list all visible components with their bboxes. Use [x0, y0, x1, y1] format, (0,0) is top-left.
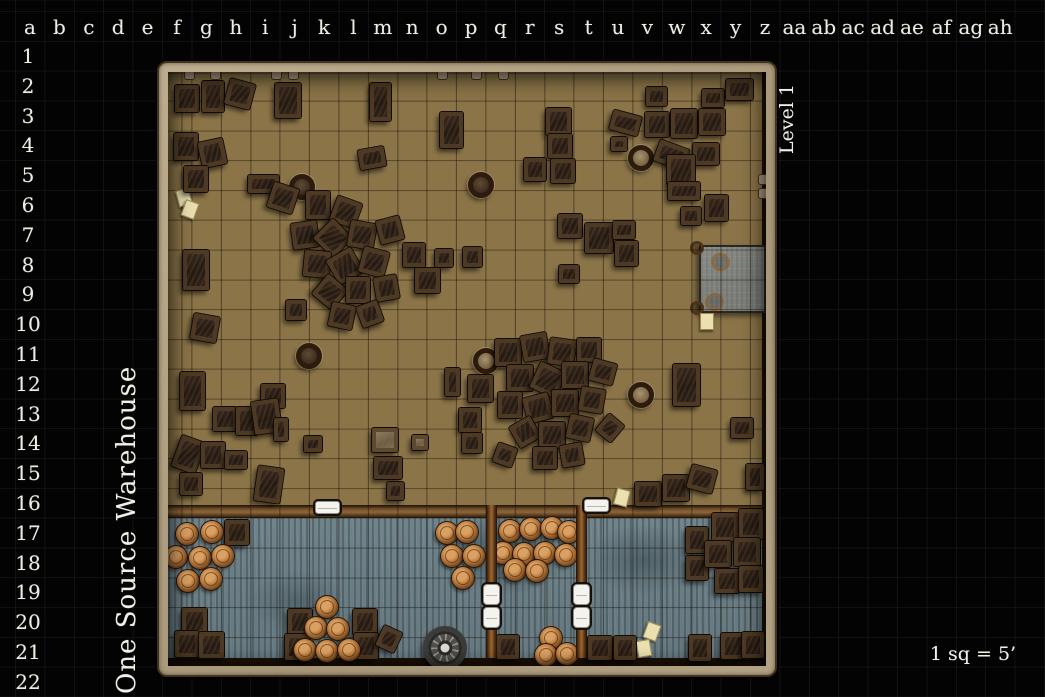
- column-label-n: n: [406, 17, 419, 37]
- crate: [507, 365, 533, 391]
- crate: [673, 364, 700, 406]
- crate: [357, 146, 386, 170]
- crate: [578, 386, 606, 414]
- row-label-8: 8: [22, 255, 35, 275]
- barrel: [520, 518, 542, 540]
- crate: [595, 413, 624, 443]
- column-label-l: l: [350, 17, 356, 37]
- crate: [533, 447, 557, 469]
- crate: [199, 632, 224, 658]
- round-vat: [628, 145, 654, 171]
- barrel: [499, 520, 521, 542]
- map-screen: One Source Warehouse Level 1 1 sq = 5’ a…: [0, 0, 1045, 697]
- crate: [374, 457, 402, 479]
- row-label-16: 16: [15, 493, 40, 513]
- crate: [645, 112, 669, 137]
- crate: [375, 625, 402, 653]
- wall-notch: [758, 174, 766, 185]
- crate: [726, 79, 753, 100]
- column-label-aa: aa: [782, 17, 806, 37]
- crate: [174, 133, 198, 160]
- crate: [613, 221, 635, 239]
- crate: [201, 442, 225, 468]
- crate: [197, 138, 227, 169]
- crate: [224, 78, 256, 110]
- barrel: [168, 546, 187, 568]
- paper-note: [636, 638, 653, 657]
- column-label-i: i: [262, 17, 268, 37]
- crate: [562, 362, 588, 388]
- row-label-15: 15: [15, 463, 40, 483]
- crate: [705, 541, 731, 567]
- barrel: [316, 596, 338, 618]
- column-label-o: o: [436, 17, 448, 37]
- barrel: [456, 521, 478, 543]
- wall-notch: [437, 72, 448, 80]
- crate: [705, 195, 728, 221]
- wall-notch: [758, 188, 766, 199]
- barrel: [305, 617, 327, 639]
- wall-notch: [184, 72, 195, 80]
- row-label-18: 18: [15, 553, 40, 573]
- crate: [702, 89, 724, 107]
- crate: [497, 635, 519, 659]
- column-label-ah: ah: [988, 17, 1013, 37]
- row-label-11: 11: [15, 344, 40, 364]
- column-label-h: h: [229, 17, 242, 37]
- crate: [611, 137, 627, 151]
- wall-notch: [210, 72, 221, 80]
- crate: [353, 609, 377, 635]
- column-label-z: z: [760, 17, 771, 37]
- crate: [468, 375, 493, 402]
- map-object-layer: [168, 72, 766, 666]
- column-label-ag: ag: [958, 17, 983, 37]
- crate: [387, 482, 404, 500]
- crate: [739, 566, 763, 592]
- barrel: [177, 570, 199, 592]
- crate: [746, 464, 764, 490]
- row-label-13: 13: [15, 404, 40, 424]
- map-interior: [168, 72, 766, 666]
- crate: [739, 509, 763, 539]
- barrel: [555, 544, 577, 566]
- barrel: [504, 559, 526, 581]
- crate: [635, 482, 661, 506]
- crate: [686, 464, 717, 494]
- crate: [731, 418, 753, 438]
- barrel: [316, 640, 338, 662]
- wall-notch: [271, 72, 282, 80]
- crate: [615, 241, 638, 266]
- crate: [715, 569, 739, 593]
- barrel: [327, 618, 349, 640]
- dock-divider-wall-left: [486, 505, 497, 658]
- crate: [190, 313, 220, 343]
- row-label-14: 14: [15, 433, 40, 453]
- crate: [412, 435, 428, 450]
- crate: [589, 358, 618, 385]
- crate: [671, 109, 697, 138]
- crate: [459, 408, 481, 432]
- barrel: [535, 644, 557, 666]
- crate: [614, 636, 636, 660]
- barrel: [338, 639, 360, 661]
- row-label-1: 1: [22, 46, 35, 66]
- row-label-20: 20: [15, 612, 40, 632]
- barrel: [441, 545, 463, 567]
- column-label-f: f: [173, 17, 180, 37]
- crate: [663, 475, 689, 501]
- barrel: [526, 560, 548, 582]
- row-label-6: 6: [22, 195, 35, 215]
- barrel: [436, 522, 458, 544]
- column-label-g: g: [200, 17, 213, 37]
- crate: [347, 220, 377, 250]
- barrel: [189, 547, 211, 569]
- crate: [551, 159, 575, 183]
- row-label-5: 5: [22, 165, 35, 185]
- crate: [559, 265, 579, 283]
- crate: [585, 223, 613, 253]
- crate: [520, 332, 550, 362]
- barrel: [201, 521, 223, 543]
- column-label-x: x: [701, 17, 712, 37]
- barrel: [212, 545, 234, 567]
- column-label-y: y: [730, 17, 741, 37]
- paper-note: [700, 313, 714, 330]
- crate: [175, 631, 199, 657]
- map-title: One Source Warehouse: [112, 332, 152, 694]
- crate: [304, 436, 322, 452]
- crate: [539, 422, 565, 448]
- crate: [435, 249, 453, 267]
- round-vat: [296, 343, 322, 369]
- column-label-q: q: [494, 17, 507, 37]
- row-label-4: 4: [22, 135, 35, 155]
- crate: [213, 407, 237, 431]
- column-label-ac: ac: [842, 17, 865, 37]
- column-label-a: a: [24, 17, 36, 37]
- column-label-d: d: [112, 17, 125, 37]
- column-label-t: t: [585, 17, 593, 37]
- column-label-w: w: [668, 17, 685, 37]
- column-label-b: b: [53, 17, 66, 37]
- crate: [445, 368, 460, 396]
- crate: [415, 268, 440, 293]
- paper-note: [643, 621, 662, 642]
- crate: [742, 632, 764, 658]
- door-divider-right-upper: [573, 584, 590, 605]
- level-label: Level 1: [776, 62, 806, 154]
- crate: [225, 451, 247, 469]
- crate: [667, 155, 695, 185]
- row-label-2: 2: [22, 76, 35, 96]
- battle-map-canvas[interactable]: [157, 61, 777, 677]
- crate: [180, 473, 202, 495]
- crate: [306, 191, 330, 219]
- crate: [175, 85, 199, 112]
- door-warehouse-dock-right: [584, 499, 609, 512]
- crate: [734, 538, 760, 566]
- crate: [403, 243, 425, 267]
- crate: [183, 250, 209, 290]
- door-divider-left-upper: [483, 584, 500, 605]
- crate: [495, 339, 521, 366]
- crate: [180, 372, 205, 410]
- row-label-3: 3: [22, 106, 35, 126]
- wall-notch: [288, 72, 299, 80]
- round-vat: [628, 382, 654, 408]
- crate: [693, 143, 719, 165]
- column-label-m: m: [373, 17, 392, 37]
- crate: [546, 108, 571, 135]
- door-warehouse-dock-left: [315, 501, 340, 514]
- crate: [681, 207, 701, 225]
- barrel: [452, 567, 474, 589]
- row-label-9: 9: [22, 284, 35, 304]
- wall-notch: [471, 72, 482, 80]
- crate: [566, 414, 594, 442]
- column-label-r: r: [525, 17, 535, 37]
- row-label-19: 19: [15, 582, 40, 602]
- barrel: [176, 523, 198, 545]
- crate: [492, 442, 518, 468]
- round-vat: [468, 172, 494, 198]
- row-label-22: 22: [15, 672, 40, 692]
- dock-divider-wall-right: [576, 505, 587, 658]
- crate: [375, 215, 404, 244]
- column-label-k: k: [318, 17, 330, 37]
- crate: [608, 110, 641, 137]
- column-label-af: af: [932, 17, 951, 37]
- barrel: [294, 639, 316, 661]
- crate: [462, 433, 482, 453]
- row-label-21: 21: [15, 642, 40, 662]
- crate: [440, 112, 463, 148]
- scale-label: 1 sq = 5’: [928, 643, 1018, 665]
- crate: [346, 277, 370, 303]
- crate: [559, 442, 584, 467]
- row-label-7: 7: [22, 225, 35, 245]
- crate: [524, 158, 546, 181]
- crate: [552, 390, 578, 416]
- paper-note: [613, 487, 631, 507]
- column-label-c: c: [83, 17, 94, 37]
- crate: [646, 87, 667, 106]
- column-label-j: j: [291, 17, 297, 37]
- column-label-ad: ad: [870, 17, 895, 37]
- crate: [699, 109, 725, 135]
- crate: [356, 300, 384, 328]
- crate: [548, 134, 572, 158]
- column-label-v: v: [642, 17, 653, 37]
- crate: [689, 635, 711, 661]
- crate: [588, 636, 612, 660]
- row-label-12: 12: [15, 374, 40, 394]
- crate: [372, 428, 398, 452]
- crate: [358, 246, 390, 278]
- crate: [370, 83, 391, 121]
- crate: [498, 392, 522, 418]
- column-label-s: s: [554, 17, 564, 37]
- crate: [254, 465, 285, 503]
- wall-notch: [498, 72, 509, 80]
- door-divider-left-lower: [483, 607, 500, 628]
- column-label-ae: ae: [900, 17, 924, 37]
- crate: [668, 182, 700, 200]
- crate: [463, 247, 482, 267]
- barrel: [200, 568, 222, 590]
- column-label-p: p: [465, 17, 478, 37]
- crate: [202, 81, 224, 112]
- crate: [328, 302, 356, 330]
- column-label-ab: ab: [811, 17, 836, 37]
- crate: [712, 513, 738, 541]
- column-label-u: u: [612, 17, 625, 37]
- barrel: [463, 545, 485, 567]
- row-label-17: 17: [15, 523, 40, 543]
- crate: [373, 274, 400, 302]
- barrel: [556, 643, 578, 665]
- door-divider-right-lower: [573, 607, 590, 628]
- crate: [274, 418, 288, 441]
- column-label-e: e: [142, 17, 154, 37]
- crate: [225, 520, 249, 545]
- crate: [184, 166, 208, 192]
- row-label-10: 10: [15, 314, 40, 334]
- crate: [558, 214, 582, 238]
- crate: [275, 83, 301, 118]
- crate: [286, 300, 306, 320]
